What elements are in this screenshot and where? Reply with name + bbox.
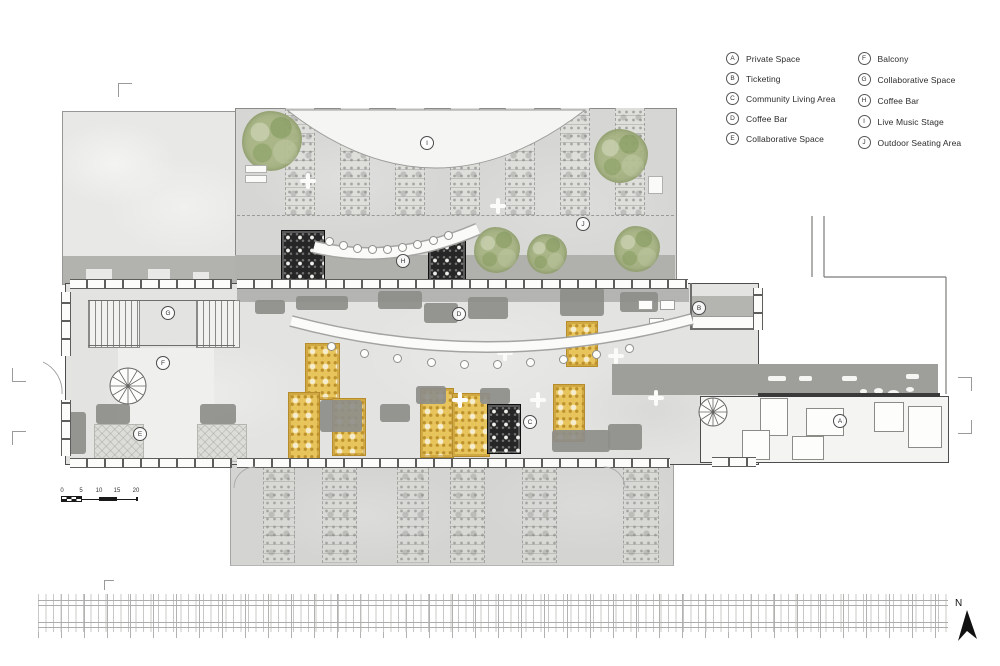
furniture [255,300,285,314]
legend-label: Coffee Bar [746,114,787,124]
furniture [320,400,362,432]
scale-bar: 05101520 [62,488,142,504]
legend-key-circle: C [726,92,739,105]
queue-stand [649,318,664,328]
queue-stand [638,300,653,310]
railway-tracks [38,594,948,638]
scale-segment-checker [62,497,81,501]
legend-key-circle: I [858,115,871,128]
plaza-paving-strip [263,467,295,563]
legend-key-circle: H [858,94,871,107]
bar-stool [526,358,535,367]
north-arrow-icon [948,598,988,650]
window-band [70,458,232,468]
planter [490,198,506,214]
scale-segment-solid [99,497,117,501]
legend-label: Private Space [746,54,800,64]
legend-label: Community Living Area [746,94,836,104]
legend-item-H: HCoffee Bar [858,94,962,107]
scale-tick-label: 15 [114,488,121,494]
bar-stool [398,243,407,252]
bar-stool [327,342,336,351]
yellow-rug [288,392,320,462]
window-band [237,458,670,468]
furniture [416,386,446,404]
furniture [608,424,642,450]
plan-marker-D: D [452,307,466,321]
planter [530,392,546,408]
legend-item-D: DCoffee Bar [726,112,836,125]
furniture [480,388,510,404]
north-arrow: N [948,598,988,650]
plaza-paving-strip [450,467,485,563]
bench [245,165,267,173]
walkway-marking [906,374,919,379]
furniture [96,404,130,424]
bar-stool [427,358,436,367]
legend-label: Collaborative Space [878,75,956,85]
bar-stool [325,237,334,246]
bench [245,175,267,183]
private-room-furniture [792,436,824,460]
floor-plan-canvas: APrivate SpaceBTicketingCCommunity Livin… [0,0,1000,666]
legend-key-circle: D [726,112,739,125]
scale-tick-label: 0 [60,488,63,494]
plan-marker-H: H [396,254,410,268]
planter [608,348,624,364]
bar-stool [339,241,348,250]
scale-segment-thin [117,499,136,501]
plaza-paving-strip [623,467,659,563]
legend-item-G: GCollaborative Space [858,73,962,86]
wing-top-wall [758,393,940,397]
corner-mark [12,431,26,445]
private-room-furniture [874,402,904,432]
bar-stool [429,236,438,245]
legend-column-2: FBalconyGCollaborative SpaceHCoffee BarI… [858,52,962,149]
legend-key-circle: A [726,52,739,65]
furniture [380,404,410,422]
legend-label: Live Music Stage [878,117,944,127]
entrance-door-swing [43,362,62,394]
plan-marker-G: G [161,306,175,320]
interior-wall [88,345,235,346]
private-room-furniture [742,430,770,460]
planter [497,345,513,361]
scale-tick-label: 20 [133,488,140,494]
corner-mark [12,368,26,382]
legend-item-F: FBalcony [858,52,962,65]
legend-item-B: BTicketing [726,72,836,85]
bar-stool [559,355,568,364]
scale-tick-label: 5 [79,488,82,494]
legend-item-J: JOutdoor Seating Area [858,136,962,149]
window-band [70,279,232,289]
legend-item-I: ILive Music Stage [858,115,962,128]
planter [648,390,664,406]
scale-segment-endcap [136,497,138,501]
terrace-paving-strip [505,108,535,215]
legend: APrivate SpaceBTicketingCCommunity Livin… [726,52,986,149]
corner-mark [104,580,114,590]
furniture [560,288,604,316]
light-rug [197,424,247,462]
plan-marker-I: I [420,136,434,150]
legend-key-circle: E [726,132,739,145]
legend-item-E: ECollaborative Space [726,132,836,145]
ticketing-wall [690,328,759,330]
bar-stool [353,244,362,253]
plan-marker-A: A [833,414,847,428]
bar-stool [368,245,377,254]
rail-line [38,627,948,628]
terrace-paving-strip [560,108,590,215]
terrace-paving-strip [395,108,425,215]
scale-tick-label: 10 [96,488,103,494]
terrace-paving-strip [340,108,370,215]
window-band [237,279,688,289]
bar-stool [592,350,601,359]
plan-marker-C: C [523,415,537,429]
window-band [61,292,71,356]
window-band [753,288,763,330]
window-band [61,400,71,456]
rail-line [38,600,948,601]
legend-label: Collaborative Space [746,134,824,144]
black-rug [281,230,325,282]
bench [648,176,663,194]
legend-key-circle: J [858,136,871,149]
queue-stand [660,300,675,310]
furniture [378,291,422,309]
black-rug [487,404,521,454]
rail-line [38,622,948,623]
bar-stool [460,360,469,369]
legend-label: Outdoor Seating Area [878,138,962,148]
planter [452,392,468,408]
furniture [200,404,236,424]
legend-label: Balcony [878,54,909,64]
bar-stool [393,354,402,363]
corner-mark [958,420,972,434]
window-band [712,457,756,467]
scale-segment-thin [81,499,99,501]
scale-bar-graphic [62,497,138,501]
furniture [468,297,508,319]
rail-line [38,605,948,606]
legend-key-circle: F [858,52,871,65]
bar-stool [444,231,453,240]
corner-mark [118,83,132,97]
staircase [196,300,240,348]
walkway-marking [768,376,786,381]
furniture [552,430,610,452]
legend-item-A: APrivate Space [726,52,836,65]
bar-stool [625,344,634,353]
bar-stool [413,240,422,249]
plan-marker-F: F [156,356,170,370]
staircase [88,300,140,348]
north-label: N [955,598,962,609]
legend-key-circle: G [858,73,871,86]
planter [300,173,316,189]
interior-wall [88,300,235,301]
walkway-marking [906,387,914,392]
bar-stool [383,245,392,254]
legend-label: Ticketing [746,74,781,84]
legend-column-1: APrivate SpaceBTicketingCCommunity Livin… [726,52,836,149]
legend-label: Coffee Bar [878,96,919,106]
bar-stool [493,360,502,369]
adjacent-roof-block [62,111,237,285]
plaza-paving-strip [397,467,429,563]
plan-marker-E: E [133,427,147,441]
terrace-paving-strip [450,108,480,215]
plan-marker-J: J [576,217,590,231]
bar-stool [360,349,369,358]
plaza-paving-strip [322,467,357,563]
legend-key-circle: B [726,72,739,85]
yellow-rug [566,321,598,367]
walkway-marking [842,376,857,381]
plaza-paving-strip [522,467,557,563]
walkway-marking [799,376,812,381]
corner-mark [958,377,972,391]
furniture [296,296,348,310]
legend-item-C: CCommunity Living Area [726,92,836,105]
private-room-furniture [908,406,942,448]
plan-marker-B: B [692,301,706,315]
stage-dashed-edge [237,215,674,216]
